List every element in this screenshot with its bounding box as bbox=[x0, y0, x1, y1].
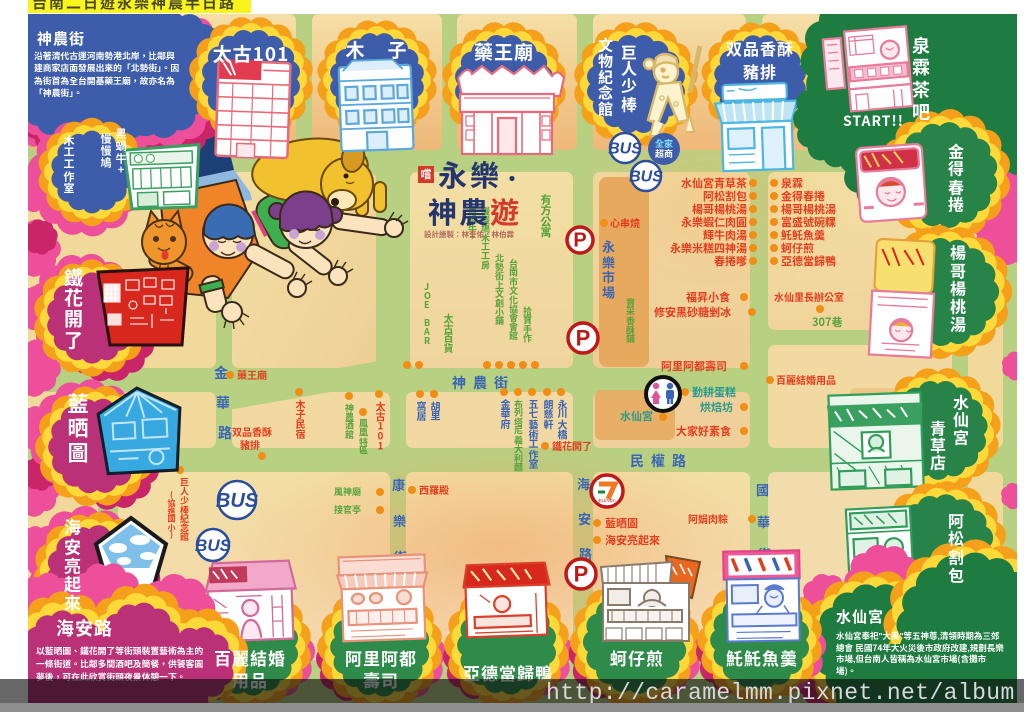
svg-text:BUS: BUS bbox=[608, 141, 642, 158]
svg-text:BUS: BUS bbox=[195, 536, 232, 555]
svg-text:BUS: BUS bbox=[216, 490, 259, 512]
svg-text:超商: 超商 bbox=[655, 147, 673, 160]
svg-text:ELEVEn: ELEVEn bbox=[598, 498, 616, 503]
svg-text:P: P bbox=[576, 326, 591, 351]
svg-text:P: P bbox=[574, 562, 589, 587]
svg-text:BUS: BUS bbox=[629, 169, 663, 186]
svg-text:P: P bbox=[573, 230, 586, 252]
